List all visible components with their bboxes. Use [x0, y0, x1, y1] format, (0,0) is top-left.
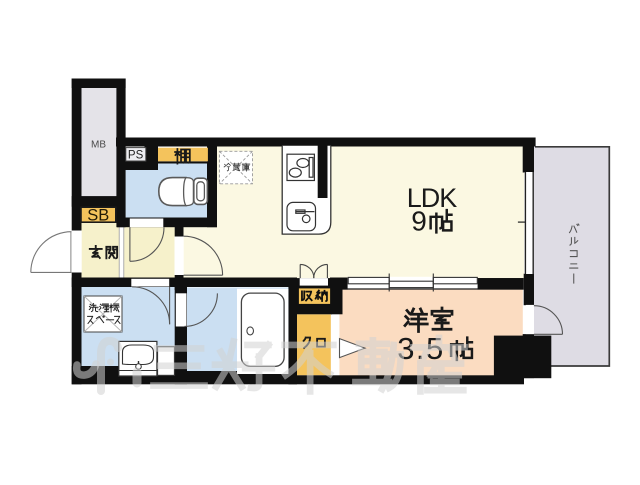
- svg-text:MB: MB: [91, 140, 106, 151]
- svg-text:PS: PS: [128, 150, 144, 162]
- svg-text:9: 9: [411, 206, 427, 237]
- svg-text:SB: SB: [87, 207, 109, 225]
